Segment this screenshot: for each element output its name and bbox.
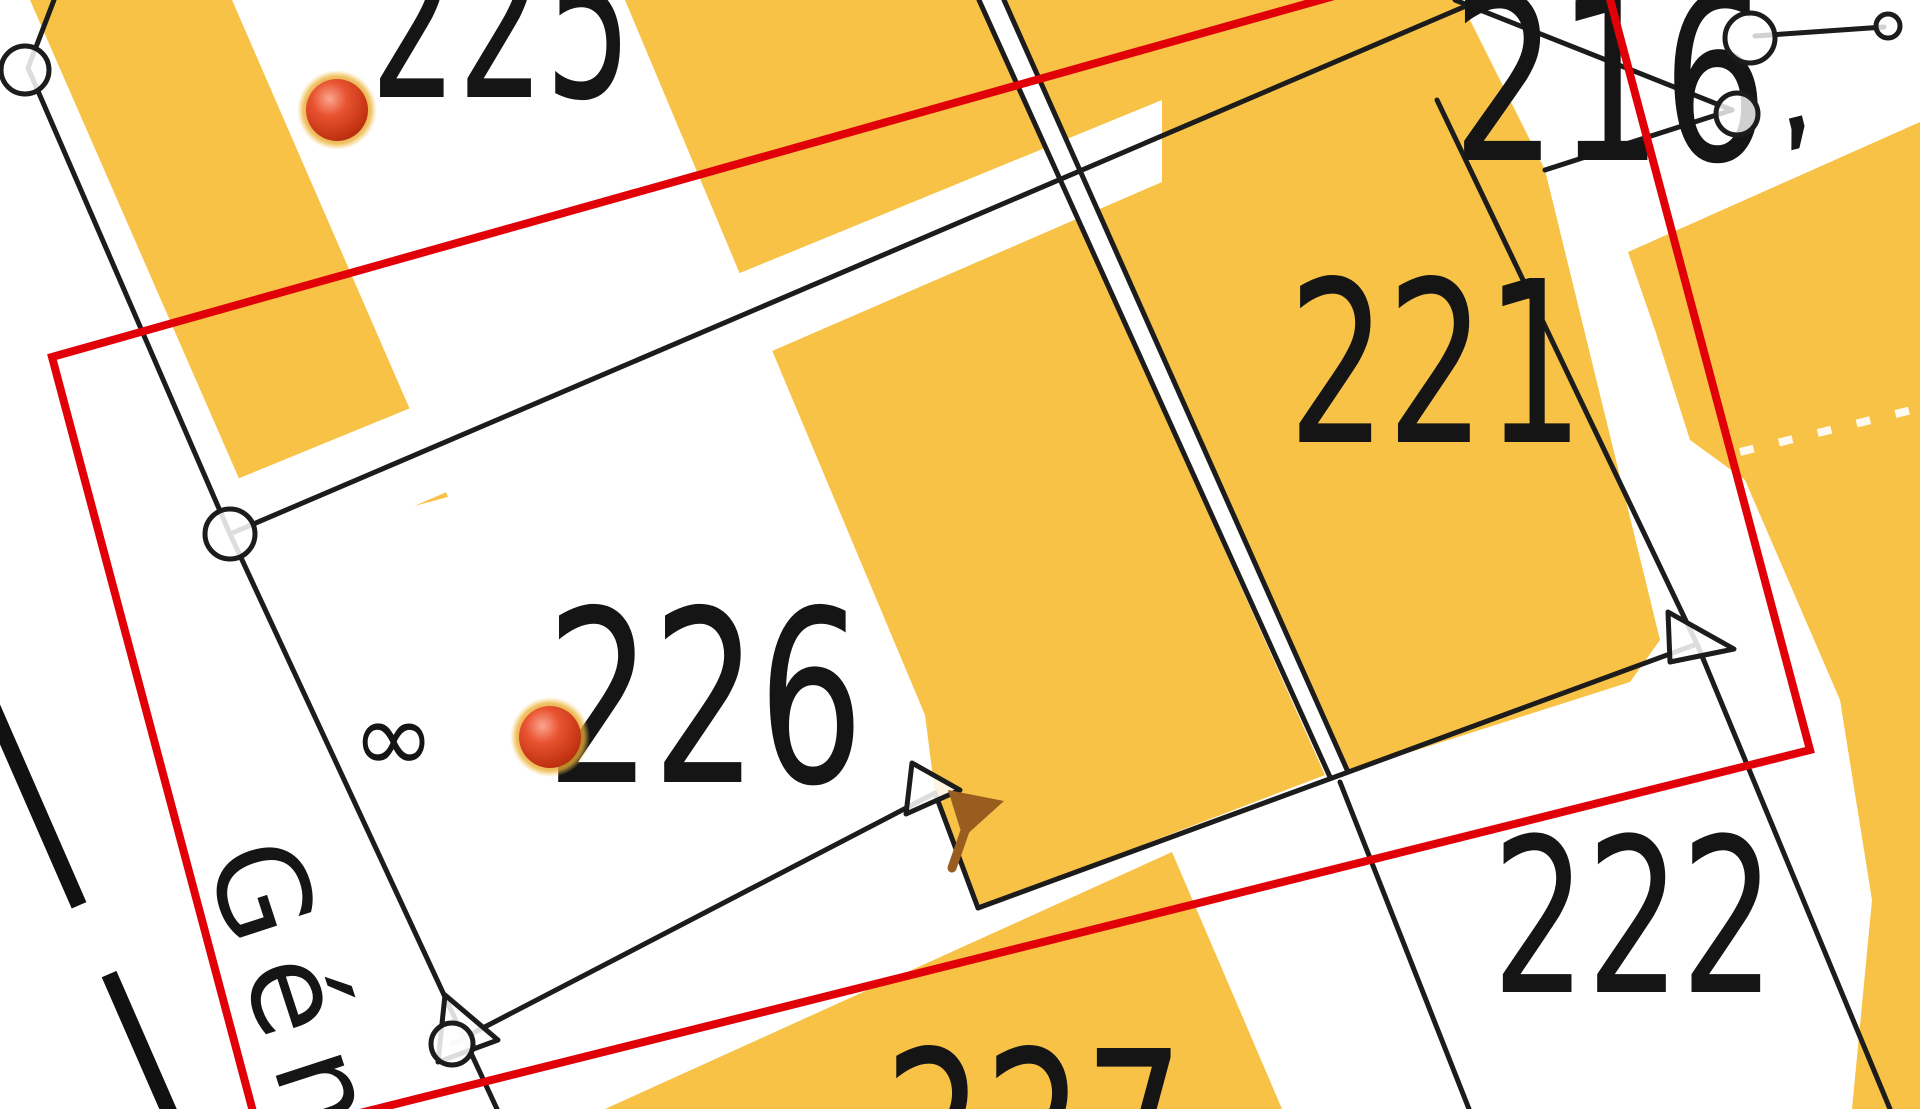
survey-circle-southwest-icon (431, 1023, 473, 1065)
point-marker-225[interactable] (297, 70, 377, 150)
survey-circle-northeast-a-icon (1725, 13, 1775, 63)
parcel-label-227[interactable]: 227 (884, 1004, 1184, 1109)
boundary-227-222 (1340, 782, 1469, 1109)
infinity-symbol: ∞ (352, 679, 435, 796)
map-canvas[interactable]: 225 216 221 226 222 227 ∞ , (0, 0, 1920, 1109)
road-centerline (0, 690, 175, 1109)
survey-triangle-east-icon (1668, 612, 1734, 662)
point-marker-226[interactable] (510, 697, 590, 777)
parcel-label-221[interactable]: 221 (1288, 234, 1584, 496)
survey-circle-west-icon (205, 509, 255, 559)
survey-circle-northeast-b-icon (1716, 93, 1758, 135)
survey-circle-top-left-icon (1, 46, 49, 94)
cadastral-map[interactable]: 225 216 221 226 222 227 ∞ , (0, 0, 1920, 1109)
sphere-dot-icon (519, 706, 581, 768)
parcel-label-222[interactable]: 222 (1492, 792, 1775, 1043)
survey-circle-northeast-small-icon (1876, 14, 1900, 38)
parcel-label-225[interactable]: 225 (370, 0, 632, 151)
parcel-label-226[interactable]: 226 (546, 559, 864, 839)
sphere-dot-icon (306, 79, 368, 141)
